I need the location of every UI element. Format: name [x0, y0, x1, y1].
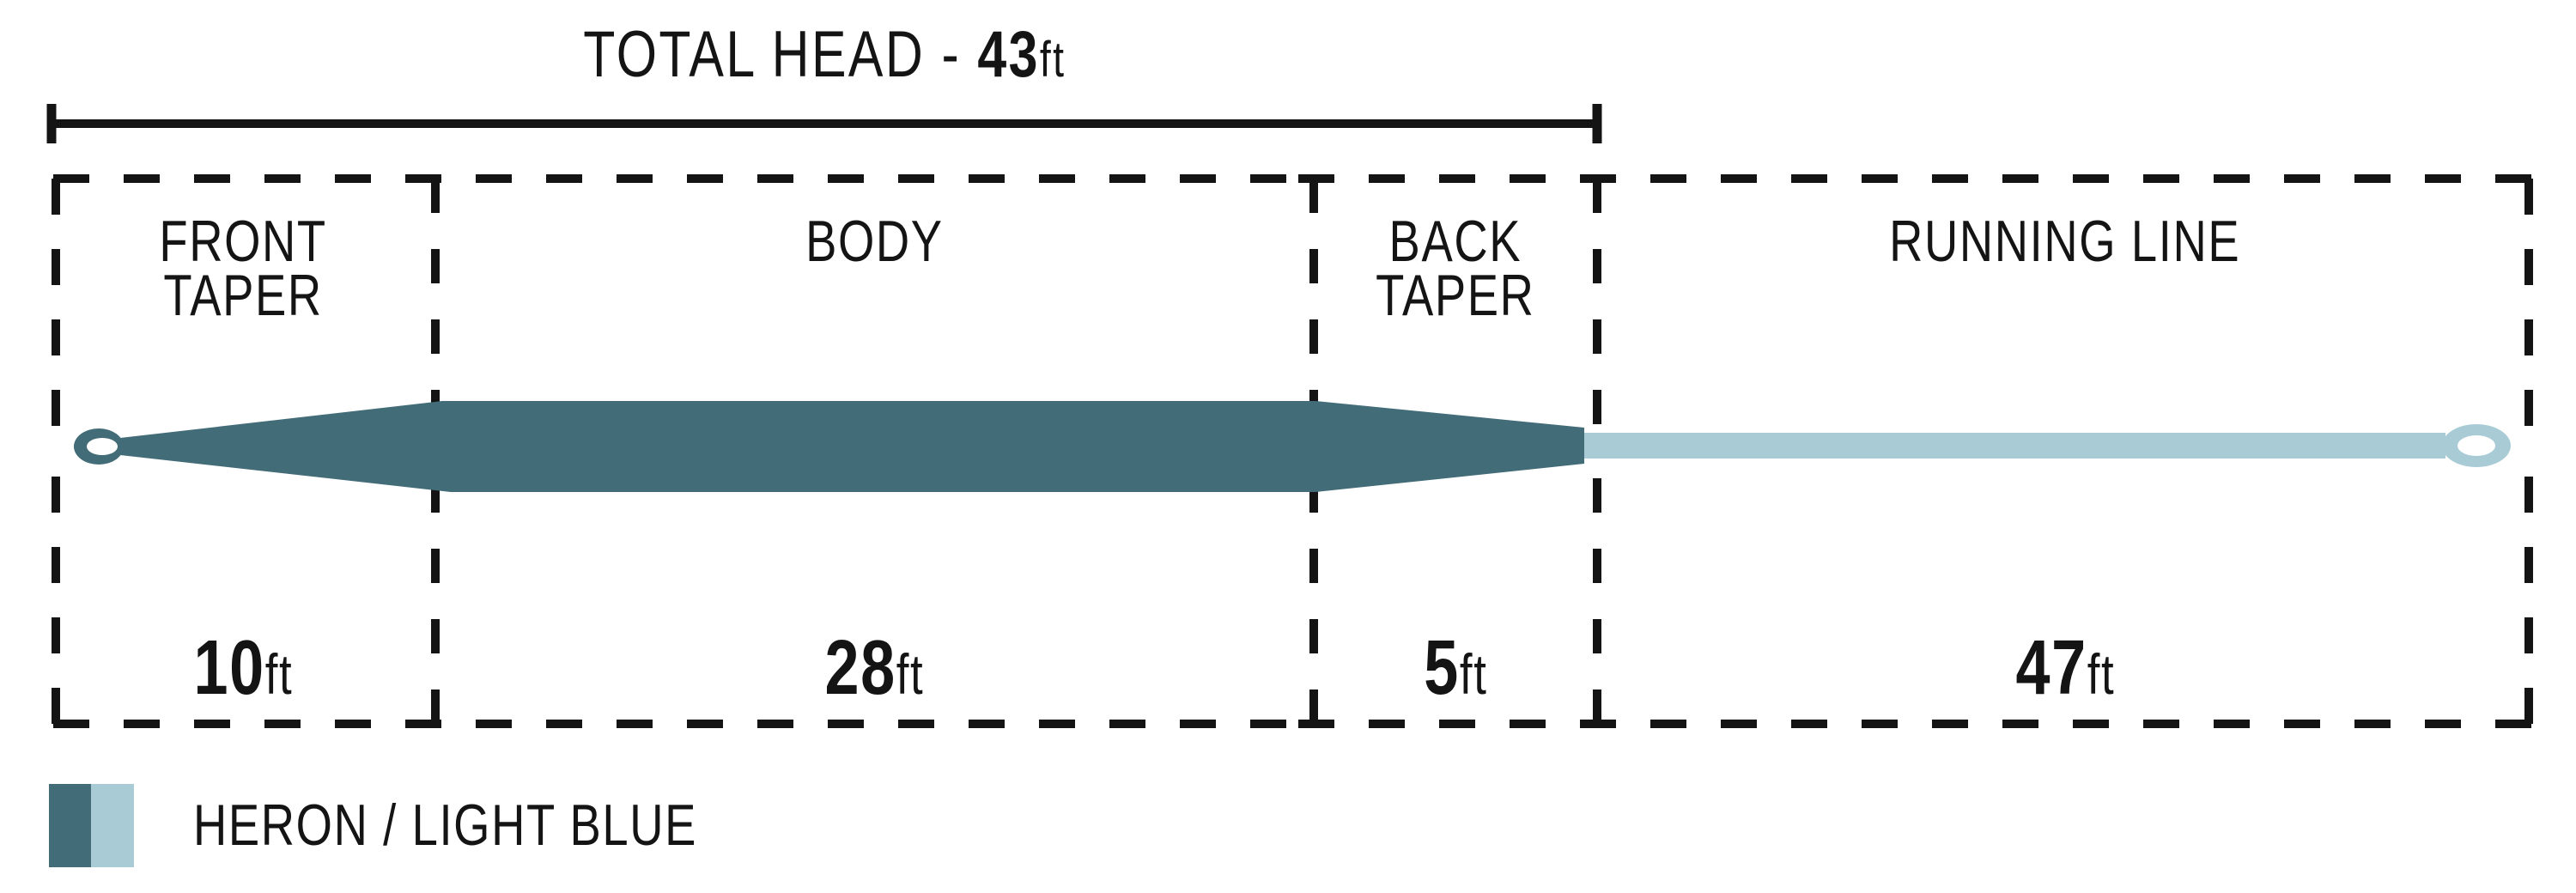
running-line-length-value: 47 [2015, 625, 2087, 711]
back-taper-label-line2: TAPER [1376, 269, 1534, 323]
front-taper-length-unit: ft [265, 642, 294, 706]
total-head-label: TOTAL HEAD - [583, 18, 977, 91]
back-taper-label: BACK TAPER [1314, 215, 1597, 323]
running-line-label-line1: RUNNING LINE [1889, 215, 2240, 269]
diagram-graphics [0, 0, 2576, 893]
body-length-value: 28 [825, 625, 896, 711]
body-label-line1: BODY [805, 215, 944, 269]
body-length: 28ft [435, 620, 1314, 716]
legend-swatches [49, 784, 134, 867]
running-line-segment [1580, 433, 2445, 459]
running-line-length-unit: ft [2087, 642, 2115, 706]
front-loop-hole [87, 438, 118, 455]
back-taper-label-line1: BACK [1376, 215, 1534, 269]
running-line-length: 47ft [1597, 620, 2533, 716]
body-length-unit: ft [896, 642, 925, 706]
total-head-value: 43 [977, 18, 1039, 91]
total-head-unit: ft [1039, 32, 1066, 88]
fly-line-taper-diagram: TOTAL HEAD - 43ft FRONT TAPER BODY BACK … [0, 0, 2576, 893]
legend-swatch-heron [49, 784, 91, 867]
front-taper-length: 10ft [52, 620, 435, 716]
legend-swatch-light-blue [91, 784, 134, 867]
front-taper-length-value: 10 [194, 625, 265, 711]
front-taper-label-line1: FRONT [160, 215, 327, 269]
running-line-label: RUNNING LINE [1597, 215, 2533, 269]
back-taper-length-value: 5 [1424, 625, 1460, 711]
total-head-title: TOTAL HEAD - 43ft [52, 12, 1597, 98]
back-taper-length-unit: ft [1460, 642, 1488, 706]
legend-label: HERON / LIGHT BLUE [193, 782, 823, 868]
front-taper-label-line2: TAPER [160, 269, 327, 323]
total-head-bracket [52, 104, 1597, 143]
head-taper-profile [120, 401, 1584, 492]
head-shape [74, 401, 1584, 492]
front-taper-label: FRONT TAPER [52, 215, 435, 323]
back-taper-length: 5ft [1314, 620, 1597, 716]
body-label: BODY [435, 215, 1314, 269]
legend-color-names: HERON / LIGHT BLUE [193, 782, 697, 868]
running-line-shape [1580, 424, 2511, 467]
rear-loop-hole [2458, 435, 2495, 456]
